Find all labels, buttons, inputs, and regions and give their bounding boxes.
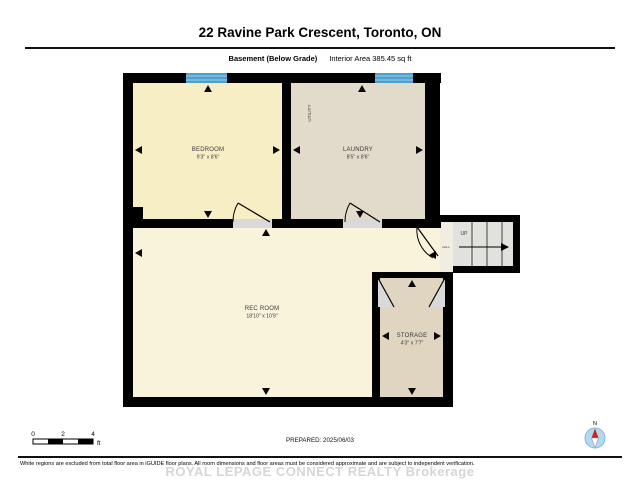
- compass-north-label: N: [593, 421, 597, 427]
- storage-label: STORAGE: [397, 333, 428, 339]
- hall-label: HALL: [442, 245, 450, 249]
- bedroom-label: BEDROOM: [192, 147, 224, 153]
- rec-room-label: REC ROOM: [245, 306, 280, 312]
- floor-plan-graphic: BEDROOM 9'3" x 8'6" LAUNDRY 8'5" x 8'6" …: [0, 0, 640, 495]
- brokerage-watermark: ROYAL LEPAGE CONNECT REALTY Brokerage: [0, 464, 640, 479]
- bedroom-dims: 9'3" x 8'6": [197, 155, 220, 161]
- wall-segment: [123, 73, 133, 407]
- footer-divider: [18, 456, 622, 458]
- wall-segment: [425, 215, 520, 222]
- laundry-door-opening: [343, 219, 382, 228]
- prepared-date: PREPARED: 2025/06/03: [286, 437, 355, 444]
- stairs-up-label: UP: [461, 231, 469, 237]
- scale-unit: ft: [97, 440, 101, 447]
- wall-segment: [272, 219, 343, 228]
- wall-segment: [425, 83, 440, 228]
- wall-segment: [282, 83, 291, 228]
- scale-tick-0: 0: [31, 431, 35, 438]
- scale-bar: 0 2 4 ft: [31, 431, 101, 447]
- storage-dims: 4'3" x 7'7": [401, 341, 424, 347]
- wall-segment: [380, 272, 443, 278]
- room-fills: [133, 83, 513, 397]
- scale-bar-segment: [48, 439, 63, 444]
- laundry-window-icon: [375, 73, 413, 83]
- compass-icon: N: [585, 421, 605, 448]
- laundry-dims: 8'5" x 8'6": [347, 155, 370, 161]
- laundry-label: LAUNDRY: [343, 147, 373, 153]
- scale-tick-4: 4: [91, 431, 95, 438]
- wall-segment: [133, 219, 233, 228]
- wall-segment: [123, 207, 143, 228]
- rec-room-dims: 18'10" x 10'9": [246, 314, 277, 320]
- bedroom-window-icon: [186, 73, 227, 83]
- scale-bar-segment: [78, 439, 93, 444]
- wall-segment: [453, 266, 520, 273]
- scale-tick-2: 2: [61, 431, 65, 438]
- stairs-floor: [453, 222, 513, 266]
- wall-segment: [513, 215, 520, 273]
- utility-label: UTILITY: [307, 104, 312, 121]
- wall-segment: [123, 397, 453, 407]
